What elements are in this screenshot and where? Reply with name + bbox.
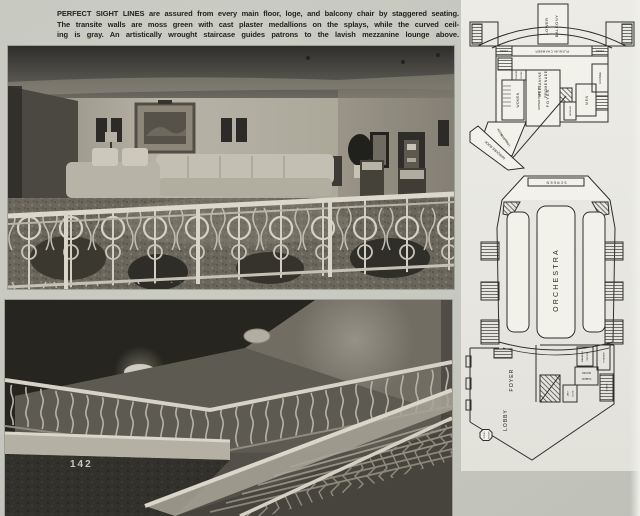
label-manager: MANAGER [581, 351, 584, 362]
page-number: 142 [70, 459, 93, 470]
label-lounge: LOUNGE [598, 72, 602, 84]
staircase-photo [5, 300, 452, 516]
label-check-room-1: CHECK [581, 377, 591, 381]
label-powder-room: ROOM [521, 71, 523, 78]
label-lobby: LOBBY [503, 409, 509, 431]
label-upper-part-of: UPPER PART OF [537, 86, 541, 110]
label-screen: SCREEN [545, 181, 566, 185]
label-janitor: JAN'T [567, 390, 570, 397]
label-foyer: FOYER [509, 369, 515, 392]
orchestra-plan: SCREEN ORCHESTRA FOYER LOBBY ROOM CHECK … [466, 170, 638, 462]
caption-line-3: ing is gray. An artistically wrought sta… [57, 30, 459, 41]
label-office: OFFICE [587, 352, 589, 361]
caption-block: PERFECT SIGHT LINES are assured from eve… [57, 9, 459, 41]
caption-line-1: PERFECT SIGHT LINES are assured from eve… [57, 9, 459, 20]
label-lower: LOWER [544, 17, 549, 34]
label-upper-foyer: FOYER [545, 89, 550, 108]
label-powder: POWDER [516, 70, 518, 80]
label-plenum-chamber: PLENUM CHAMBER [535, 50, 569, 54]
label-smoking: SMOKING [570, 106, 572, 117]
lounge-photo [8, 46, 454, 289]
label-storage: STORAGE [603, 352, 606, 363]
label-men: MEN [585, 95, 589, 104]
label-women: WOMEN [516, 92, 520, 107]
mezzanine-plan-outline [470, 4, 634, 170]
label-orchestra: ORCHESTRA [553, 248, 560, 312]
label-ticket: TICKET [484, 431, 486, 439]
label-stairs-left: STAIRS [499, 49, 508, 52]
label-booth: BOOTH [489, 431, 491, 439]
caption-line-2: The transite walls are moss green with c… [57, 20, 459, 31]
label-stairs-right: STAIRS [595, 49, 604, 52]
book-page: PERFECT SIGHT LINES are assured from eve… [0, 0, 640, 516]
label-stairs: STAIRS [606, 383, 609, 391]
orchestra-plan-outline [466, 176, 623, 460]
label-closet: CLOS. [573, 390, 575, 397]
label-balcony: BALCONY [554, 15, 559, 38]
mezzanine-plan: LOWER BALCONY PLENUM CHAMBER STAIRS STAI… [468, 2, 636, 170]
label-check-room-2: ROOM [581, 371, 590, 375]
